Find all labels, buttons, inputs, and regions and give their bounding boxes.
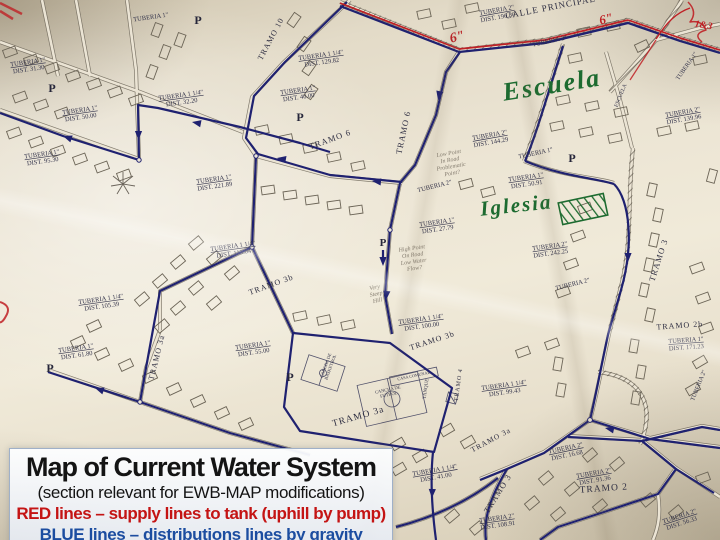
map-label: TUBERIA 1 1/4"DIST. 113.04: [210, 240, 257, 260]
legend-red-lines: RED lines – supply lines to tank (uphill…: [14, 503, 388, 524]
map-label: TUBERIA 1 1/4"DIST. 129.82: [298, 49, 345, 69]
map-label: P: [286, 370, 293, 384]
map-label: Iglesia: [478, 189, 553, 221]
map-label: TANQUE: [423, 379, 431, 400]
map-label: 6": [448, 29, 466, 47]
slide-title: Map of Current Water System: [14, 452, 388, 482]
map-label: TUBERIA 1": [518, 146, 554, 160]
map-label: TUBERIA 2"DIST. 108.91: [479, 513, 516, 532]
map-label: P: [194, 13, 201, 27]
map-label: TRAMO 4: [454, 368, 465, 402]
map-label: TRAMO 2: [579, 482, 628, 495]
map-label: TUBERIA 1 1/4"DIST. 100.00: [398, 313, 445, 333]
map-label: TUBERIA 2": [417, 179, 453, 194]
map-label: TUBERIA 1"DIST. 27.79: [419, 217, 456, 236]
map-label: VerySteepHill: [368, 284, 385, 306]
map-label: TUBERIA 2"DIST. 144.29: [472, 129, 510, 149]
map-label: TUBERIA 2"DIST. 56.33: [662, 508, 700, 533]
red-scribble-left: [0, 302, 8, 322]
map-label: CALLE PRINCIPAL: [504, 0, 596, 21]
map-label: TRAMO 3b: [248, 272, 295, 296]
map-label: TRAMO 3a: [331, 405, 385, 429]
map-label: TRAMO 10: [256, 16, 286, 62]
map-label: Low PointIn RoadProblematicPoint?: [433, 148, 468, 179]
map-label: TUBERIA 1"DIST. 50.00: [62, 105, 99, 124]
map-label: TRAMO 3: [647, 238, 670, 283]
map-label: TRAMO 3b: [409, 329, 456, 352]
map-label: TUBERIA 1"DIST. 50.91: [508, 172, 545, 191]
map-label: P: [48, 81, 55, 95]
map-label: TUBERIA 2"DIST. 242.25: [532, 241, 569, 260]
iglesia-highlight: [558, 193, 608, 224]
map-photo-slide: TUBERIA 1"DIST. 31.30TUBERIA 1"PTUBERIA …: [0, 0, 720, 540]
map-label: TRAMO 6: [308, 127, 353, 151]
map-label: Escuela: [499, 63, 603, 107]
map-label: TRAMO 6: [394, 110, 413, 155]
map-label: High PointOn RoadLow WaterFlow?: [397, 244, 428, 274]
map-label: TUBERIA 2": [555, 277, 591, 292]
map-label: TUBERIA 1"DIST. 221.89: [196, 174, 233, 193]
map-label: TUBERIA 1 1/4"DIST. 105.39: [78, 293, 125, 313]
map-label: TUBERIA 1 1/4"DIST. 99.43: [481, 379, 528, 399]
map-label: TUBERIA 1": [133, 12, 169, 24]
map-label: P: [46, 361, 53, 375]
map-label: TUBERIA 1"DIST. 95.30: [24, 149, 61, 168]
map-label: TRAMO 2b: [656, 319, 703, 331]
map-label: CANCHA DEFUTBOL: [375, 384, 403, 399]
map-label: TUBERIA 1"DIST. 55.00: [235, 340, 272, 359]
slide-subtitle: (section relevant for EWB-MAP modificati…: [14, 482, 388, 503]
map-label: TUBERIA 1": [675, 51, 699, 82]
map-label: TUBERIA 1"DIST. 171.23: [668, 336, 705, 353]
map-label: CANCHA DEBASKETBOL: [319, 352, 338, 381]
map-label: TRAMO 3a: [469, 425, 512, 454]
map-label: TUBERIA 1"DIST. 40.00: [280, 85, 317, 104]
map-label: TUBERIA 2"DIST. 139.96: [665, 106, 703, 126]
map-label: TUBERIA 1"DIST. 61.80: [58, 343, 95, 362]
map-label: P: [296, 110, 303, 124]
map-label: P: [380, 237, 387, 249]
map-label: TUBERIA 1 1/4"DIST. 32.20: [158, 89, 205, 109]
map-label: TUBERIA 2": [690, 369, 708, 402]
caption-box: Map of Current Water System (section rel…: [9, 448, 393, 540]
map-label: TUBERIA 1 1/4"DIST. 41.00: [412, 463, 459, 485]
map-label: P: [568, 151, 575, 165]
red-supply-lines: [0, 2, 720, 322]
map-label: TUBERIA 1"DIST. 31.30: [10, 57, 47, 76]
red-mark-top-left: [0, 3, 22, 19]
legend-blue-lines: BLUE lines – distributions lines by grav…: [14, 524, 388, 540]
